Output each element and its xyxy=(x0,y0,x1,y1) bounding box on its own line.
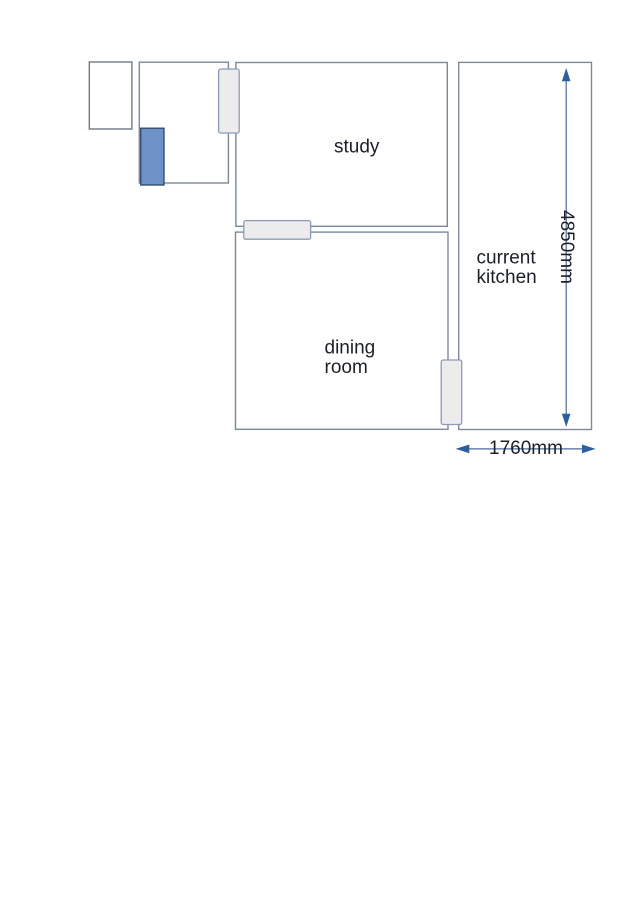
svg-text:current: current xyxy=(477,248,537,269)
svg-text:study: study xyxy=(334,137,380,158)
svg-text:room: room xyxy=(325,357,368,378)
svg-text:4850mm: 4850mm xyxy=(556,210,577,284)
svg-text:1760mm: 1760mm xyxy=(489,438,563,459)
svg-text:dining: dining xyxy=(325,338,376,359)
svg-text:kitchen: kitchen xyxy=(477,267,537,288)
